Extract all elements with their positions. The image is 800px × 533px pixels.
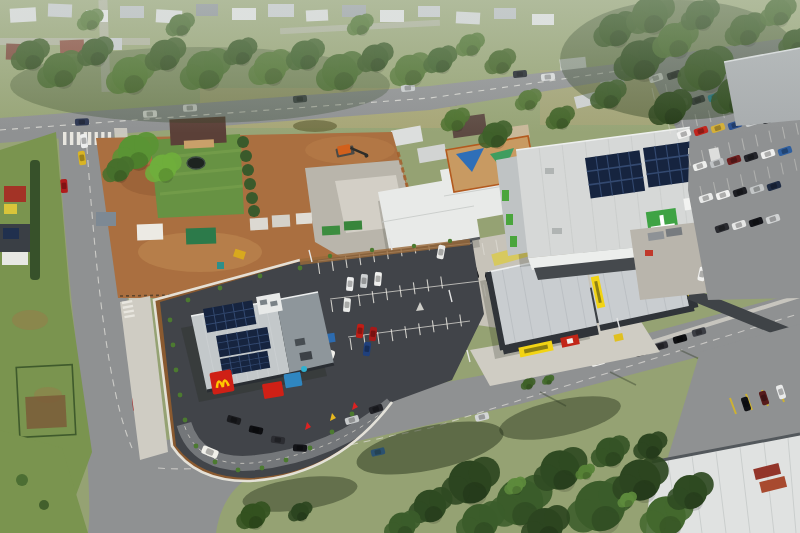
atmospheric-haze: [0, 0, 800, 533]
scene: [0, 0, 800, 533]
aerial-photo: [0, 0, 800, 533]
